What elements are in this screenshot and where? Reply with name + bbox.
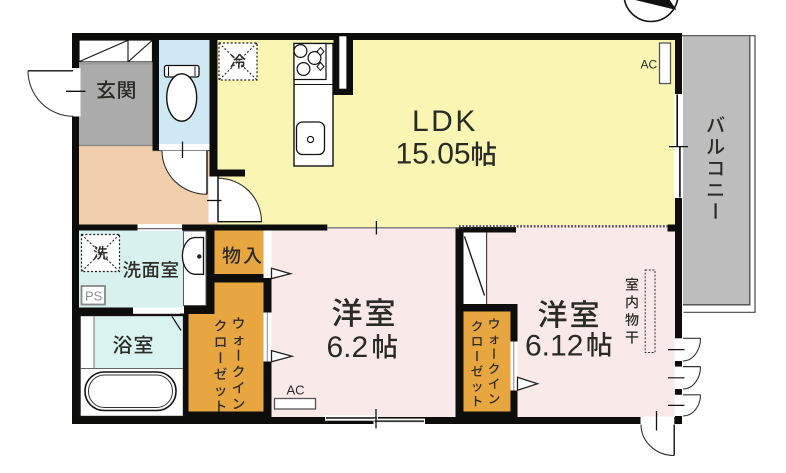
svg-text:LDK: LDK (412, 105, 478, 138)
svg-text:15.05: 15.05 (396, 138, 471, 171)
svg-text:6.2: 6.2 (327, 331, 369, 364)
svg-text:6.12: 6.12 (525, 330, 583, 363)
svg-text:AC: AC (641, 58, 658, 72)
svg-text:AC: AC (287, 383, 305, 398)
svg-text:PS: PS (85, 289, 103, 304)
